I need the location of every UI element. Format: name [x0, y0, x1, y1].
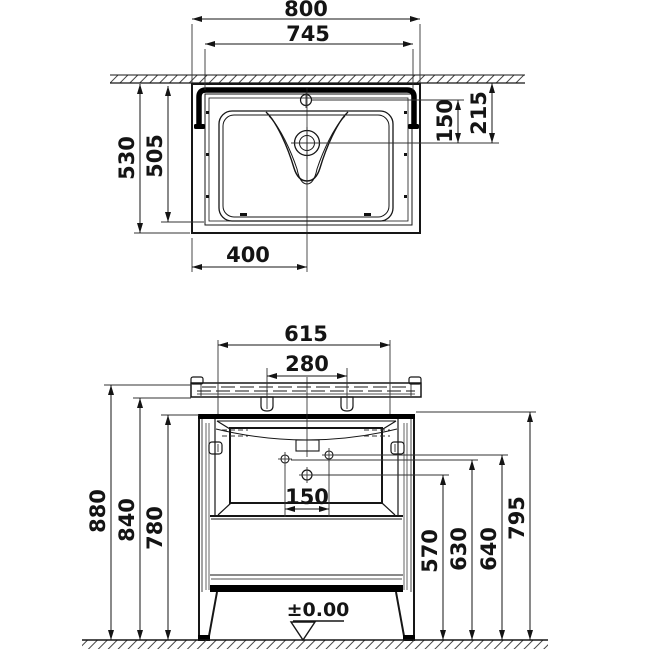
dim-label-530: 530 — [115, 136, 139, 180]
dim-label-630: 630 — [447, 527, 471, 571]
plan-view: 800 745 530 505 150 — [110, 0, 525, 272]
floor-level-label: ±0.00 — [287, 599, 350, 621]
dim-drain-center-400: 400 — [192, 238, 307, 272]
bowl-underside-arc — [216, 429, 397, 440]
center-mount-hole — [299, 467, 315, 483]
dim-label-840: 840 — [115, 498, 139, 542]
dim-label-505: 505 — [143, 134, 167, 178]
datum-triangle-icon — [291, 622, 315, 640]
bottom-rail — [210, 585, 403, 592]
washbasin-front — [191, 377, 421, 411]
dim-label-880: 880 — [86, 489, 110, 533]
dim-label-150-top: 150 — [433, 99, 457, 143]
dim-label-640: 640 — [477, 527, 501, 571]
floor-level-marker: ±0.00 — [287, 599, 350, 640]
drain-outlet-box — [296, 440, 319, 451]
wall-hatch-band — [110, 75, 525, 83]
dim-label-215: 215 — [467, 91, 491, 135]
technical-drawing-page: 800 745 530 505 150 — [0, 0, 650, 650]
mounting-profile — [199, 90, 414, 127]
right-leg-taper — [396, 592, 404, 636]
dim-label-615: 615 — [284, 322, 328, 346]
dim-label-780: 780 — [143, 506, 167, 550]
cabinet-top-rail — [198, 414, 415, 419]
right-bracket-hook — [408, 124, 419, 129]
dim-label-150-front: 150 — [285, 485, 329, 509]
basin-body — [191, 383, 421, 397]
dim-cabinet-top-height: 795 — [416, 412, 536, 640]
dim-label-745: 745 — [286, 22, 330, 46]
left-bracket-hook — [194, 124, 205, 129]
floor-hatch — [82, 640, 548, 649]
front-view: 615 280 880 840 780 — [82, 322, 548, 649]
dim-label-800: 800 — [284, 0, 328, 21]
dim-cabinet-height: 780 — [143, 415, 199, 640]
left-mount-hole — [278, 452, 292, 466]
dim-label-570: 570 — [418, 529, 442, 573]
left-leg-taper — [209, 592, 217, 636]
wall-hatch — [110, 75, 525, 83]
technical-drawing-canvas: 800 745 530 505 150 — [0, 0, 650, 650]
floor-hatch-band — [82, 640, 548, 649]
bowl-outer — [219, 111, 393, 221]
dim-wall-drain-215: 215 — [467, 83, 492, 143]
dim-label-795: 795 — [505, 496, 529, 540]
dim-label-400: 400 — [226, 243, 270, 267]
dim-label-280: 280 — [285, 352, 329, 376]
dim-depth-505: 505 — [143, 86, 204, 222]
